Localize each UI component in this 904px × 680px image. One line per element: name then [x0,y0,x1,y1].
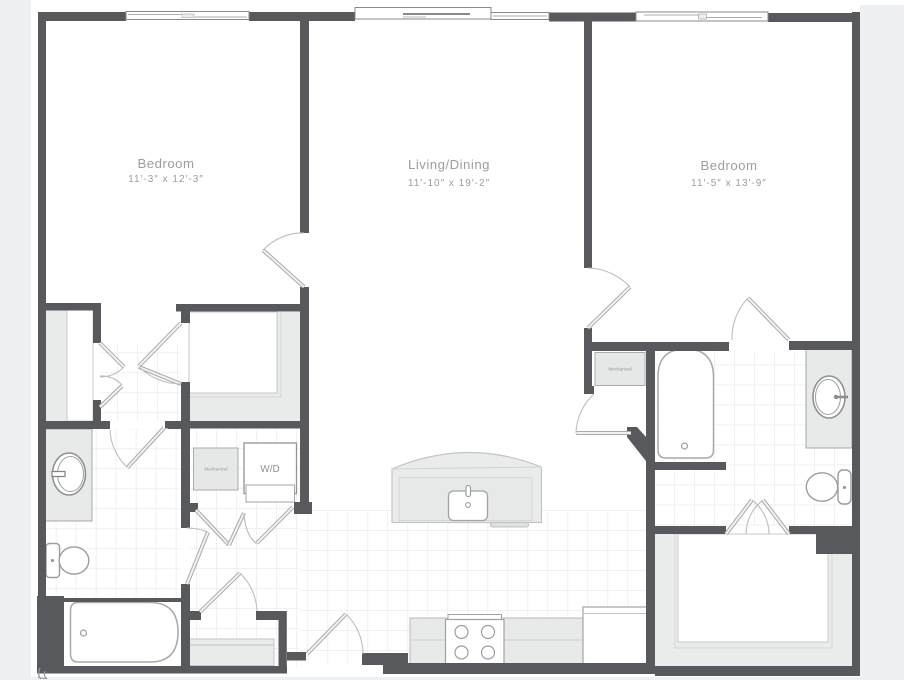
svg-text:Living/Dining: Living/Dining [408,157,490,172]
svg-text:11′-10″ x 19′-2″: 11′-10″ x 19′-2″ [408,178,490,189]
svg-text:Bedroom: Bedroom [137,156,194,171]
svg-text:W/D: W/D [260,464,279,475]
svg-text:11′-5″ x 13′-9″: 11′-5″ x 13′-9″ [691,178,767,189]
svg-text:11′-3″ x 12′-3″: 11′-3″ x 12′-3″ [128,174,204,185]
svg-text:Bedroom: Bedroom [700,158,757,173]
svg-text:Mechanical: Mechanical [608,367,631,372]
svg-text:Mechanical: Mechanical [204,467,227,472]
